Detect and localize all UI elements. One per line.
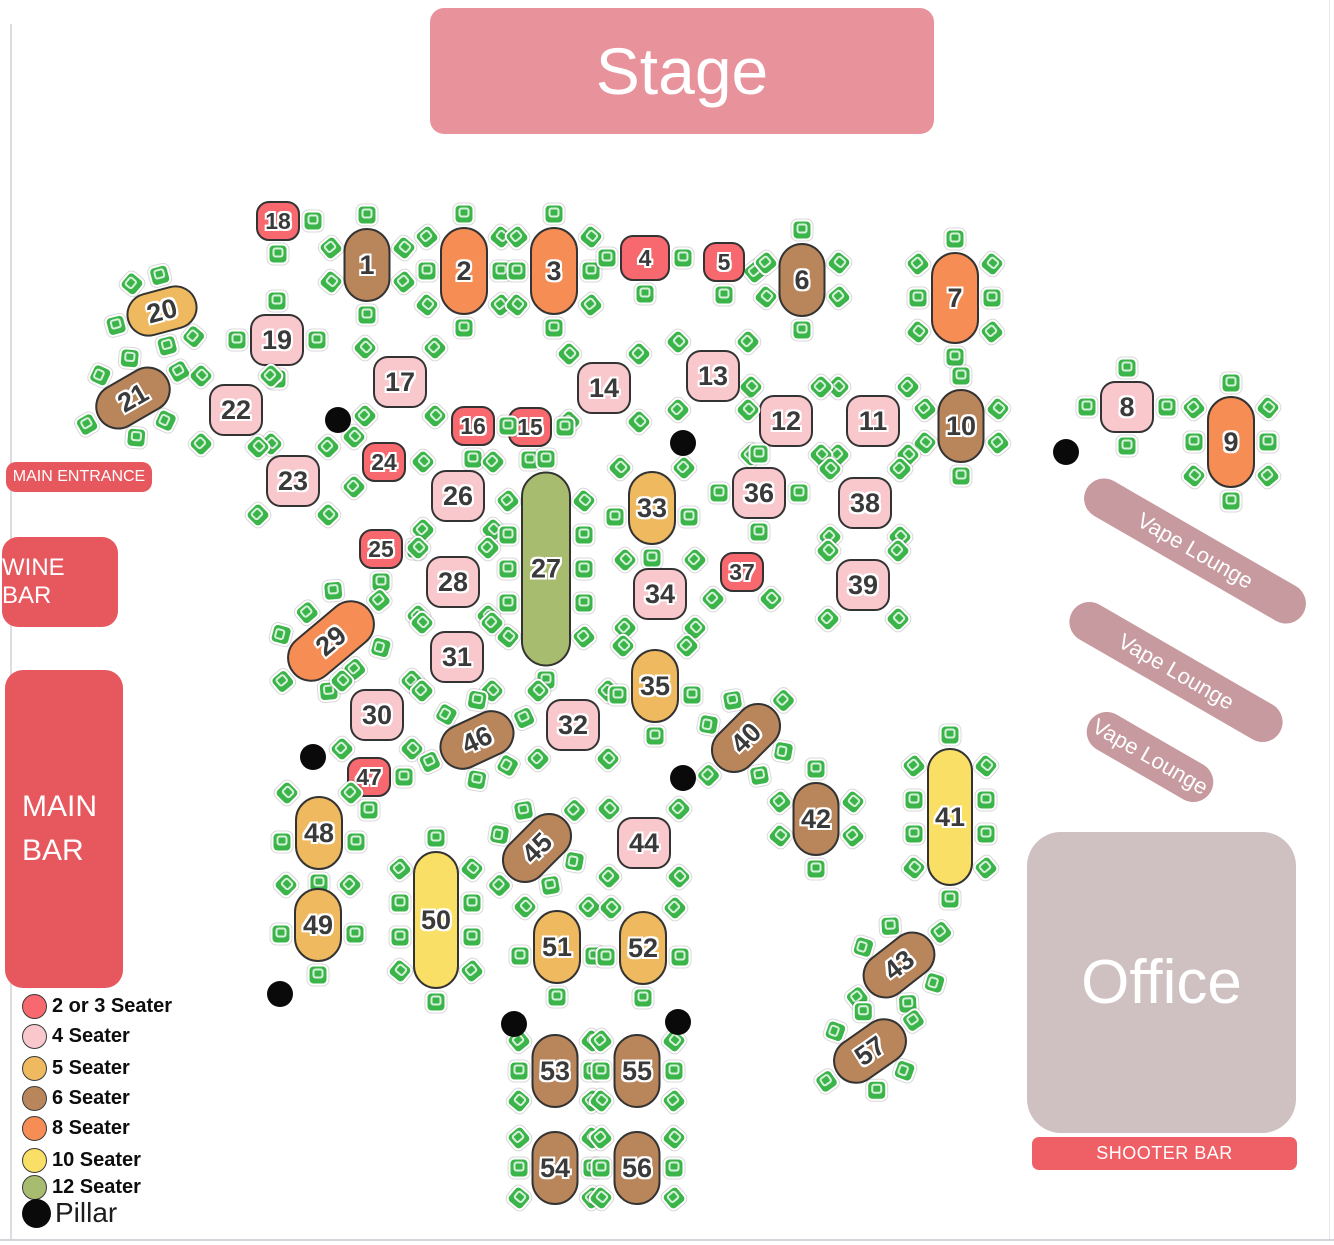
chair-icon (1221, 491, 1242, 512)
table-number: 37 (729, 559, 755, 586)
table-number: 56 (622, 1153, 652, 1184)
table-number: 41 (935, 802, 965, 833)
chair-icon (412, 290, 442, 320)
chair-icon (272, 778, 302, 808)
chair-icon (103, 312, 129, 338)
chair-icon (605, 506, 626, 527)
table-2[interactable]: 2 (440, 227, 488, 315)
chair-icon (951, 366, 972, 387)
pillar (325, 407, 351, 433)
table-51[interactable]: 51 (533, 910, 581, 984)
table-44[interactable]: 44 (617, 817, 671, 869)
chair-icon (903, 317, 933, 347)
shooter-bar-area: SHOOTER BAR (1032, 1137, 1297, 1170)
table-18[interactable]: 18 (256, 201, 300, 241)
chair-icon (806, 859, 827, 880)
chair-icon (624, 339, 654, 369)
chair-icon (504, 1123, 534, 1153)
chair-icon (271, 923, 292, 944)
table-9[interactable]: 9 (1207, 396, 1255, 488)
chair-icon (576, 290, 606, 320)
chair-icon (498, 525, 519, 546)
table-number: 44 (629, 828, 659, 859)
main-entrance-area: MAIN ENTRANCE (6, 462, 152, 492)
legend-label: 10 Seater (52, 1149, 141, 1172)
table-number: 24 (371, 449, 397, 476)
chair-icon (749, 444, 770, 465)
chair-icon (610, 545, 640, 575)
chair-icon (462, 893, 483, 914)
table-32[interactable]: 32 (546, 699, 600, 751)
office-area: Office (1027, 832, 1296, 1133)
legend-label: 6 Seater (52, 1087, 130, 1110)
legend-color-swatch (22, 1175, 47, 1200)
table-50[interactable]: 50 (413, 851, 459, 989)
table-number: 31 (442, 642, 472, 673)
table-30[interactable]: 30 (350, 689, 404, 741)
chair-icon (633, 988, 654, 1009)
chair-icon (350, 333, 380, 363)
legend-pillar-label: Pillar (55, 1197, 117, 1229)
chair-icon (663, 1158, 684, 1179)
table-33[interactable]: 33 (628, 471, 676, 545)
chair-icon (977, 317, 1007, 347)
chair-icon (186, 361, 216, 391)
table-56[interactable]: 56 (614, 1131, 661, 1205)
chair-icon (389, 267, 419, 297)
table-number: 9 (1223, 427, 1238, 458)
table-37[interactable]: 37 (720, 552, 764, 592)
pillar (670, 765, 696, 791)
chair-icon (976, 824, 997, 845)
table-number: 7 (947, 283, 962, 314)
chair-icon (510, 892, 540, 922)
pillar (670, 430, 696, 456)
chair-icon (390, 927, 411, 948)
table-number: 42 (801, 804, 831, 835)
table-54[interactable]: 54 (532, 1131, 579, 1205)
chair-icon (498, 593, 519, 614)
table-number: 29 (310, 619, 353, 662)
table-number: 57 (849, 1030, 891, 1073)
table-7[interactable]: 7 (931, 252, 979, 344)
table-number: 40 (724, 716, 767, 759)
table-number: 38 (850, 488, 880, 519)
chair-icon (508, 1158, 529, 1179)
legend-label: 8 Seater (52, 1117, 130, 1140)
vape-lounge-label: Vape Lounge (1114, 628, 1239, 715)
chair-icon (663, 327, 693, 357)
table-number: 36 (744, 478, 774, 509)
chair-icon (1117, 358, 1138, 379)
chair-icon (899, 751, 929, 781)
chair-icon (457, 956, 487, 986)
table-number: 6 (794, 265, 809, 296)
chair-icon (454, 318, 475, 339)
legend-color-swatch (22, 1116, 47, 1141)
chair-icon (493, 486, 523, 516)
table-39[interactable]: 39 (836, 559, 890, 611)
table-12[interactable]: 12 (759, 395, 813, 447)
chair-icon (806, 372, 836, 402)
table-number: 18 (265, 208, 291, 235)
table-14[interactable]: 14 (577, 362, 631, 414)
table-number: 27 (531, 554, 561, 585)
chair-icon (510, 704, 538, 732)
chair-icon (502, 222, 532, 252)
chair-icon (465, 688, 489, 712)
legend-item: 6 Seater (22, 1084, 130, 1112)
table-41[interactable]: 41 (927, 748, 973, 886)
chair-icon (608, 631, 638, 661)
chair-icon (394, 767, 415, 788)
table-number: 48 (304, 818, 334, 849)
table-24[interactable]: 24 (362, 442, 406, 482)
chair-icon (313, 500, 343, 530)
chair-icon (303, 211, 324, 232)
table-number: 14 (589, 373, 619, 404)
main-bar-area: MAIN BAR (5, 670, 123, 988)
chair-icon (971, 751, 1001, 781)
chair-icon (903, 249, 933, 279)
table-number: 39 (848, 570, 878, 601)
chair-icon (940, 889, 961, 910)
chair-icon (313, 432, 343, 462)
legend-pillar-swatch (22, 1199, 51, 1228)
table-number: 8 (1119, 392, 1134, 423)
chair-icon (663, 395, 693, 425)
table-number: 10 (946, 411, 976, 442)
table-49[interactable]: 49 (294, 888, 342, 962)
chair-icon (659, 1183, 689, 1213)
table-number: 17 (385, 367, 415, 398)
chair-icon (866, 1080, 887, 1101)
chair-icon (547, 987, 568, 1008)
chair-icon (498, 416, 519, 437)
chair-icon (345, 923, 366, 944)
wine-bar-area: WINE BAR (2, 537, 118, 627)
chair-icon (714, 285, 735, 306)
chair-icon (824, 248, 854, 278)
chair-icon (569, 486, 599, 516)
chair-icon (462, 927, 483, 948)
table-number: 49 (303, 910, 333, 941)
canvas-right-border (1329, 0, 1330, 1239)
table-52[interactable]: 52 (619, 911, 667, 985)
chair-icon (1179, 461, 1209, 491)
table-number: 13 (698, 361, 728, 392)
chair-icon (977, 249, 1007, 279)
table-1[interactable]: 1 (344, 228, 391, 302)
chair-icon (624, 407, 654, 437)
table-number: 1 (359, 250, 374, 281)
chair-icon (1117, 436, 1138, 457)
chair-icon (951, 466, 972, 487)
chair-icon (385, 956, 415, 986)
chair-icon (562, 849, 586, 873)
chair-icon (659, 1086, 689, 1116)
table-number: 12 (771, 406, 801, 437)
table-27[interactable]: 27 (521, 472, 571, 667)
table-16[interactable]: 16 (451, 406, 495, 446)
table-number: 53 (540, 1056, 570, 1087)
vape-lounge-label: Vape Lounge (1133, 507, 1258, 594)
chair-icon (1157, 397, 1178, 418)
chair-icon (544, 318, 565, 339)
chair-icon (1253, 393, 1283, 423)
chair-icon (751, 282, 781, 312)
chair-icon (465, 768, 489, 792)
chair-icon (544, 204, 565, 225)
legend-label: 5 Seater (52, 1057, 130, 1080)
chair-icon (268, 244, 289, 265)
table-number: 3 (546, 256, 561, 287)
chair-icon (408, 447, 438, 477)
chair-icon (596, 893, 626, 923)
chair-icon (1179, 393, 1209, 423)
table-number: 46 (457, 720, 497, 761)
chair-icon (357, 305, 378, 326)
table-23[interactable]: 23 (266, 455, 320, 507)
chair-icon (659, 1123, 689, 1153)
chair-icon (899, 853, 929, 883)
vape-lounge-banner: Vape Lounge (1077, 471, 1314, 631)
chair-icon (813, 604, 843, 634)
chair-icon (663, 1061, 684, 1082)
chair-icon (1077, 397, 1098, 418)
chair-icon (608, 684, 629, 705)
table-number: 35 (640, 671, 670, 702)
chair-icon (669, 453, 699, 483)
chair-icon (267, 291, 288, 312)
table-number: 15 (517, 414, 543, 441)
table-34[interactable]: 34 (633, 568, 687, 620)
legend-label: 12 Seater (52, 1176, 141, 1199)
chair-icon (910, 394, 940, 424)
chair-icon (574, 559, 595, 580)
chair-icon (508, 1061, 529, 1082)
chair-icon (523, 744, 553, 774)
table-number: 26 (443, 481, 473, 512)
chair-icon (1258, 432, 1279, 453)
chair-icon (792, 220, 813, 241)
chair-icon (765, 821, 795, 851)
chair-icon (945, 347, 966, 368)
table-28[interactable]: 28 (426, 556, 480, 608)
chair-icon (574, 593, 595, 614)
chair-icon (879, 915, 901, 937)
chair-icon (504, 1183, 534, 1213)
chair-icon (733, 327, 763, 357)
table-number: 52 (628, 933, 658, 964)
table-19[interactable]: 19 (250, 314, 304, 366)
table-number: 51 (542, 932, 572, 963)
chair-icon (590, 1061, 611, 1082)
chair-icon (789, 483, 810, 504)
table-number: 2 (456, 256, 471, 287)
pillar (665, 1009, 691, 1035)
table-10[interactable]: 10 (938, 389, 985, 463)
chair-icon (680, 545, 710, 575)
chair-icon (507, 261, 528, 282)
chair-icon (976, 790, 997, 811)
chair-icon (272, 831, 293, 852)
chair-icon (227, 330, 248, 351)
table-number: 34 (645, 579, 675, 610)
chair-icon (983, 428, 1013, 458)
pillar (267, 981, 293, 1007)
chair-icon (838, 821, 868, 851)
chair-icon (147, 262, 173, 288)
table-number: 11 (859, 406, 888, 437)
chair-icon (322, 579, 345, 602)
chair-icon (536, 448, 557, 469)
chair-icon (385, 854, 415, 884)
chair-icon (983, 394, 1013, 424)
shooter-bar-label: SHOOTER BAR (1096, 1143, 1233, 1164)
table-number: 30 (362, 700, 392, 731)
chair-icon (971, 853, 1001, 883)
chair-icon (664, 862, 694, 892)
chair-icon (908, 288, 929, 309)
legend-item: 5 Seater (22, 1054, 130, 1082)
table-number: 5 (718, 249, 731, 276)
chair-icon (155, 333, 181, 359)
chair-icon (420, 401, 450, 431)
table-48[interactable]: 48 (295, 796, 343, 870)
chair-icon (569, 622, 599, 652)
chair-icon (806, 759, 827, 780)
table-31[interactable]: 31 (430, 631, 484, 683)
table-number: 33 (637, 493, 667, 524)
chair-icon (853, 1001, 874, 1022)
chair-icon (824, 282, 854, 312)
chair-icon (792, 320, 813, 341)
table-number: 25 (368, 536, 394, 563)
table-35[interactable]: 35 (631, 649, 679, 723)
chair-icon (679, 506, 700, 527)
table-17[interactable]: 17 (373, 356, 427, 408)
legend-color-swatch (22, 1056, 47, 1081)
chair-icon (749, 522, 770, 543)
chair-icon (538, 873, 562, 897)
chair-icon (642, 548, 663, 569)
chair-icon (307, 330, 328, 351)
chair-icon (747, 763, 771, 787)
table-5[interactable]: 5 (703, 242, 745, 282)
table-36[interactable]: 36 (732, 467, 786, 519)
chair-icon (940, 725, 961, 746)
legend-color-swatch (22, 1148, 47, 1173)
table-38[interactable]: 38 (838, 477, 892, 529)
table-number: 4 (639, 245, 652, 272)
chair-icon (673, 248, 694, 269)
main-bar-label-line1: MAIN (22, 785, 97, 829)
chair-icon (359, 800, 380, 821)
pillar (1053, 439, 1079, 465)
chair-icon (118, 347, 141, 370)
table-55[interactable]: 55 (614, 1034, 661, 1108)
table-6[interactable]: 6 (779, 243, 826, 317)
legend-item-pillar: Pillar (22, 1199, 117, 1227)
office-label: Office (1081, 947, 1242, 1018)
chair-icon (645, 726, 666, 747)
canvas-left-border (10, 24, 12, 1241)
table-53[interactable]: 53 (532, 1034, 579, 1108)
chair-icon (346, 831, 367, 852)
table-number: 21 (112, 377, 154, 419)
table-11[interactable]: 11 (846, 395, 900, 447)
legend-item: 8 Seater (22, 1114, 130, 1142)
table-42[interactable]: 42 (793, 782, 840, 856)
chair-icon (574, 525, 595, 546)
chair-icon (335, 870, 365, 900)
table-number: 20 (143, 292, 180, 330)
chair-icon (904, 790, 925, 811)
chair-icon (670, 946, 691, 967)
legend-label: 2 or 3 Seater (52, 995, 172, 1018)
table-8[interactable]: 8 (1100, 381, 1154, 433)
wine-bar-label: WINE BAR (2, 554, 118, 610)
chair-icon (593, 744, 623, 774)
chair-icon (1184, 432, 1205, 453)
table-22[interactable]: 22 (209, 384, 263, 436)
table-number: 54 (540, 1153, 570, 1184)
table-3[interactable]: 3 (530, 227, 578, 315)
chair-icon (454, 204, 475, 225)
table-4[interactable]: 4 (620, 235, 670, 281)
chair-icon (504, 1086, 534, 1116)
legend-item: 2 or 3 Seater (22, 992, 172, 1020)
table-25[interactable]: 25 (359, 529, 403, 569)
chair-icon (904, 824, 925, 845)
table-number: 16 (460, 413, 486, 440)
pillar (501, 1011, 527, 1037)
chair-icon (756, 584, 786, 614)
chair-icon (316, 233, 346, 263)
chair-icon (316, 267, 346, 297)
chair-icon (664, 794, 694, 824)
main-entrance-label: MAIN ENTRANCE (13, 468, 145, 486)
legend-color-swatch (22, 1024, 47, 1049)
chair-icon (765, 787, 795, 817)
chair-icon (597, 248, 618, 269)
pillar (300, 744, 326, 770)
chair-icon (498, 559, 519, 580)
stage-area: Stage (430, 8, 934, 134)
chair-icon (682, 684, 703, 705)
chair-icon (426, 992, 447, 1013)
stage-label: Stage (596, 33, 768, 109)
chair-icon (893, 372, 923, 402)
chair-icon (186, 429, 216, 459)
vape-lounge-banner: Vape Lounge (1079, 705, 1220, 810)
table-number: 19 (262, 325, 292, 356)
table-13[interactable]: 13 (686, 350, 740, 402)
chair-icon (357, 205, 378, 226)
chair-icon (883, 604, 913, 634)
canvas-bottom-border (0, 1239, 1334, 1241)
table-26[interactable]: 26 (431, 470, 485, 522)
chair-icon (555, 417, 576, 438)
chair-icon (771, 739, 795, 763)
chair-icon (243, 500, 273, 530)
table-number: 55 (622, 1056, 652, 1087)
chair-icon (308, 965, 329, 986)
chair-icon (635, 284, 656, 305)
table-number: 32 (558, 710, 588, 741)
chair-icon (945, 229, 966, 250)
